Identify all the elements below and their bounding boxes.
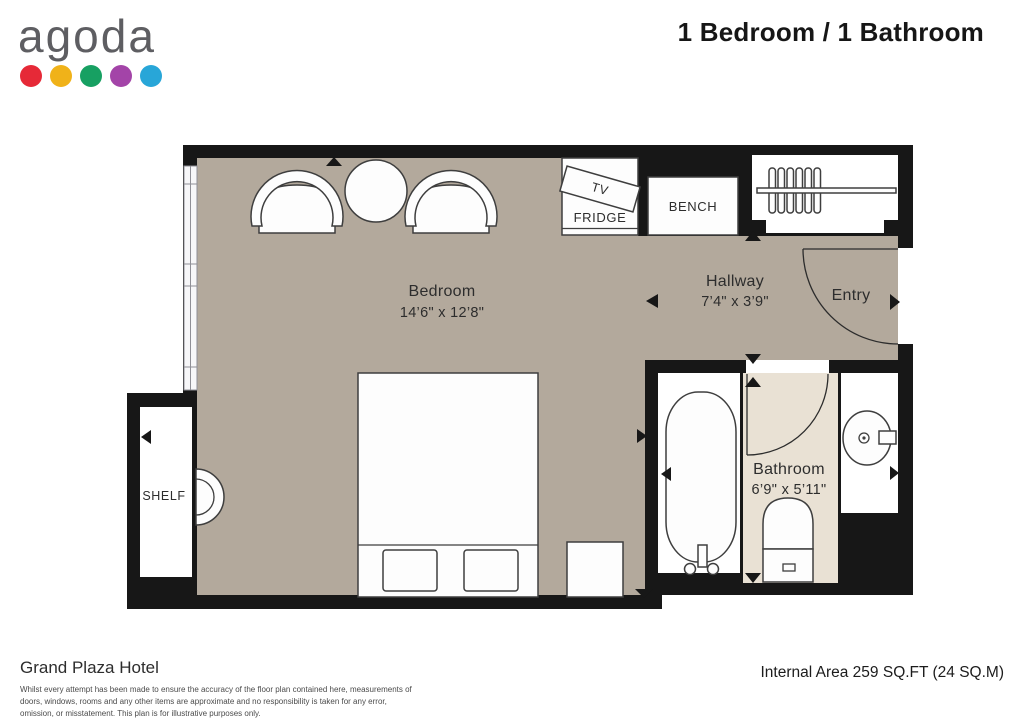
bedroom-dims: 14’6" x 12’8": [400, 305, 484, 321]
bathtub-tap: [708, 564, 719, 575]
hallway-label: Hallway: [706, 273, 764, 290]
bedroom-label: Bedroom: [408, 283, 475, 300]
bathtub-spout: [698, 545, 707, 567]
closet-wall-stub: [884, 220, 898, 233]
pillow: [383, 550, 437, 591]
closet-wall-stub: [752, 220, 766, 233]
fridge-label: FRIDGE: [574, 210, 627, 225]
pillow: [464, 550, 518, 591]
entry-door-opening: [898, 248, 913, 344]
bed: [358, 373, 538, 597]
window: [184, 166, 197, 390]
bathroom-door-opening: [746, 360, 829, 373]
nightstand: [567, 542, 623, 597]
property-name: Grand Plaza Hotel: [20, 658, 159, 678]
hallway-dims: 7’4" x 3’9": [701, 294, 769, 310]
bathroom-label: Bathroom: [753, 461, 825, 478]
bench: BENCH: [648, 177, 738, 235]
floor-plan: TV FRIDGE BENCH: [0, 0, 1024, 723]
shelf-label: SHELF: [142, 489, 185, 503]
disclaimer-text: Whilst every attempt has been made to en…: [20, 684, 422, 720]
sink-faucet: [879, 431, 896, 444]
bench-label: BENCH: [669, 199, 718, 214]
bathtub: [666, 392, 736, 575]
tv-fridge-unit: TV FRIDGE: [560, 158, 640, 235]
toilet: [763, 498, 813, 582]
bathtub-tap: [685, 564, 696, 575]
internal-area-text: Internal Area 259 SQ.FT (24 SQ.M): [760, 664, 1004, 682]
round-table: [345, 160, 407, 222]
entry-label: Entry: [832, 287, 871, 304]
bathroom-dims: 6’9" x 5’11": [752, 482, 827, 498]
